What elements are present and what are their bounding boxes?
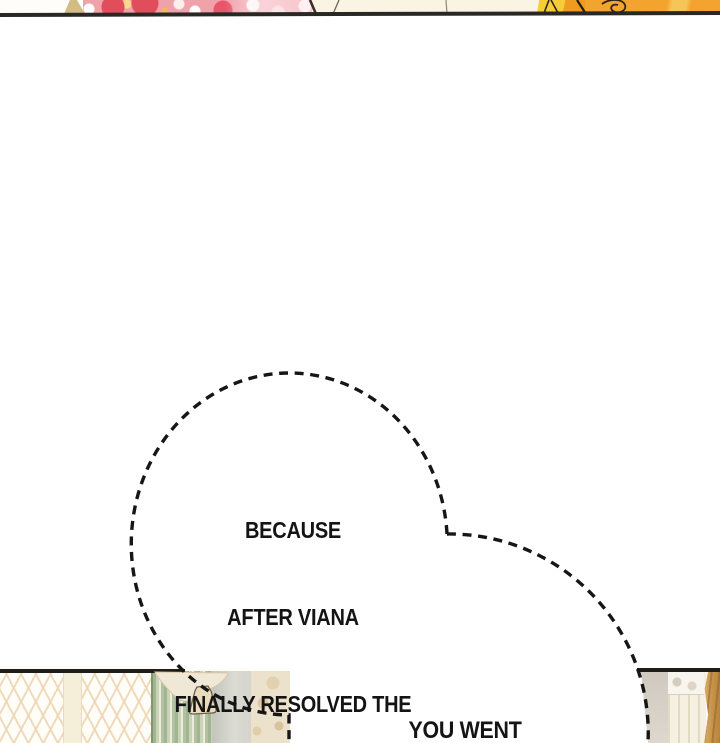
speech-bubble-line: BECAUSE [163,516,424,545]
comic-page: BECAUSE AFTER VIANA FINALLY RESOLVED THE… [0,0,720,743]
bottom-panel-border-line-right [637,668,720,672]
gray-wall-right [641,668,669,743]
top-panel-edge-strip [0,0,720,18]
speech-bubble-line: YOU WENT [332,718,599,743]
column-capital [668,672,704,695]
speech-bubble-2-text: YOU WENT AROUND BRAGGING TO EVERYONE, DE… [332,666,599,743]
lattice-wall-strip [63,671,82,743]
bottom-panel-right-art [641,668,720,743]
bottom-panel-border-line-left [0,669,185,673]
speech-bubble-line: AFTER VIANA [163,603,424,632]
